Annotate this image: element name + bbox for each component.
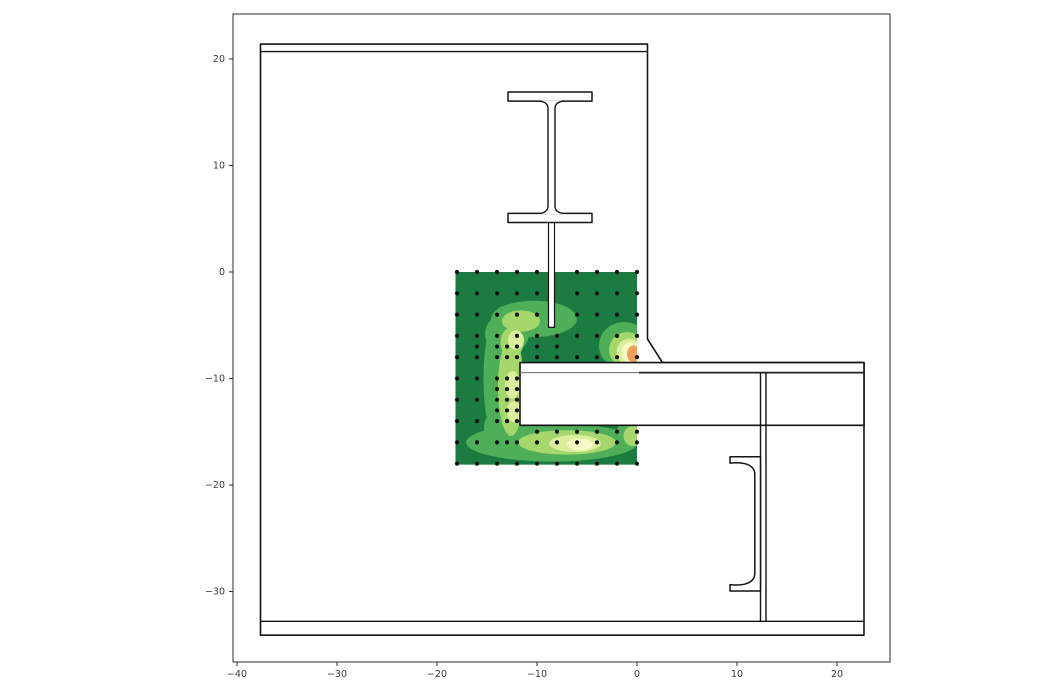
sensor-point <box>505 376 509 380</box>
sensor-point <box>595 355 599 359</box>
sensor-point <box>535 430 539 434</box>
sensor-point <box>505 398 509 402</box>
sensor-point <box>505 344 509 348</box>
sensor-point <box>635 430 639 434</box>
sensor-point <box>475 398 479 402</box>
sensor-point <box>495 291 499 295</box>
x-tick-label: −40 <box>227 669 247 680</box>
sensor-point <box>475 440 479 444</box>
contour-blob-level-4 <box>567 439 593 451</box>
x-tick-label: 20 <box>831 669 843 680</box>
sensor-point <box>635 313 639 317</box>
sensor-point <box>535 291 539 295</box>
sensor-point <box>535 313 539 317</box>
sensor-point <box>615 430 619 434</box>
sensor-point <box>575 440 579 444</box>
sensor-point <box>575 270 579 274</box>
sensor-point <box>575 313 579 317</box>
sensor-point <box>575 334 579 338</box>
sensor-point <box>595 334 599 338</box>
sensor-point <box>495 334 499 338</box>
sensor-point <box>515 419 519 423</box>
y-tick-label: 20 <box>213 54 225 65</box>
sensor-point <box>615 313 619 317</box>
sensor-point <box>615 440 619 444</box>
sensor-point <box>515 376 519 380</box>
sensor-point <box>635 334 639 338</box>
sensor-point <box>475 344 479 348</box>
contour-blob-level-2 <box>502 310 540 331</box>
sensor-point <box>495 440 499 444</box>
sensor-point <box>555 440 559 444</box>
sensor-point <box>595 440 599 444</box>
sensor-point <box>505 440 509 444</box>
sensor-point <box>515 387 519 391</box>
x-tick-label: 10 <box>731 669 743 680</box>
y-tick-label: −20 <box>205 480 225 491</box>
sensor-point <box>515 355 519 359</box>
sensor-point <box>495 313 499 317</box>
sensor-point <box>455 398 459 402</box>
sensor-point <box>455 334 459 338</box>
sensor-point <box>575 355 579 359</box>
sensor-point <box>575 462 579 466</box>
sensor-point <box>535 440 539 444</box>
sensor-point <box>475 419 479 423</box>
sensor-point <box>475 313 479 317</box>
sensor-point <box>475 291 479 295</box>
figure: −40−30−20−100102020100−10−20−30 <box>0 0 1050 700</box>
contour-blob-level-3 <box>507 401 521 422</box>
sensor-point <box>615 355 619 359</box>
sensor-point <box>635 355 639 359</box>
sensor-point <box>535 270 539 274</box>
sensor-point <box>615 334 619 338</box>
sensor-point <box>515 313 519 317</box>
sensor-point <box>595 430 599 434</box>
sensor-point <box>495 419 499 423</box>
sensor-point <box>595 291 599 295</box>
sensor-point <box>535 344 539 348</box>
sensor-point <box>495 376 499 380</box>
y-tick-label: −30 <box>205 587 225 598</box>
sensor-point <box>615 462 619 466</box>
web-plate-stem <box>549 221 555 328</box>
y-tick-label: 0 <box>219 267 225 278</box>
sensor-point <box>515 398 519 402</box>
sensor-point <box>515 440 519 444</box>
bottom-flange <box>508 213 592 222</box>
sensor-point <box>495 462 499 466</box>
sensor-point <box>495 387 499 391</box>
sensor-point <box>455 270 459 274</box>
sensor-point <box>635 462 639 466</box>
x-tick-label: −20 <box>427 669 447 680</box>
sensor-point <box>595 313 599 317</box>
sensor-point <box>635 291 639 295</box>
sensor-point <box>615 291 619 295</box>
sensor-point <box>455 355 459 359</box>
x-tick-label: −30 <box>327 669 347 680</box>
sensor-point <box>515 291 519 295</box>
sensor-point <box>505 419 509 423</box>
sensor-point <box>475 270 479 274</box>
sensor-point <box>615 270 619 274</box>
sensor-point <box>495 398 499 402</box>
sensor-point <box>575 430 579 434</box>
sensor-point <box>555 462 559 466</box>
sensor-point <box>555 355 559 359</box>
sensor-point <box>535 462 539 466</box>
sensor-point <box>575 291 579 295</box>
sensor-point <box>495 344 499 348</box>
sensor-point <box>515 344 519 348</box>
sensor-point <box>475 462 479 466</box>
contour-blob-level-3 <box>505 371 520 399</box>
sensor-point <box>515 334 519 338</box>
sensor-point <box>455 440 459 444</box>
sensor-point <box>515 270 519 274</box>
top-flange <box>508 92 592 101</box>
sensor-point <box>515 462 519 466</box>
x-tick-label: −10 <box>527 669 547 680</box>
sensor-point <box>505 408 509 412</box>
sensor-point <box>505 355 509 359</box>
sensor-point <box>595 270 599 274</box>
sensor-point <box>495 270 499 274</box>
sensor-point <box>555 430 559 434</box>
sensor-point <box>555 344 559 348</box>
x-tick-label: 0 <box>634 669 640 680</box>
sensor-point <box>635 440 639 444</box>
sensor-point <box>595 462 599 466</box>
sensor-point <box>475 334 479 338</box>
sensor-point <box>455 462 459 466</box>
sensor-point <box>455 291 459 295</box>
plot-canvas: −40−30−20−100102020100−10−20−30 <box>0 0 1050 700</box>
sensor-point <box>475 376 479 380</box>
sensor-point <box>505 387 509 391</box>
sensor-point <box>535 334 539 338</box>
sensor-point <box>475 355 479 359</box>
sensor-point <box>635 270 639 274</box>
sensor-point <box>555 334 559 338</box>
y-tick-label: 10 <box>213 161 225 172</box>
sensor-point <box>515 408 519 412</box>
sensor-point <box>535 355 539 359</box>
sensor-point <box>455 419 459 423</box>
sensor-point <box>495 355 499 359</box>
sensor-point <box>455 376 459 380</box>
sensor-point <box>455 313 459 317</box>
y-tick-label: −10 <box>205 374 225 385</box>
sensor-point <box>495 408 499 412</box>
